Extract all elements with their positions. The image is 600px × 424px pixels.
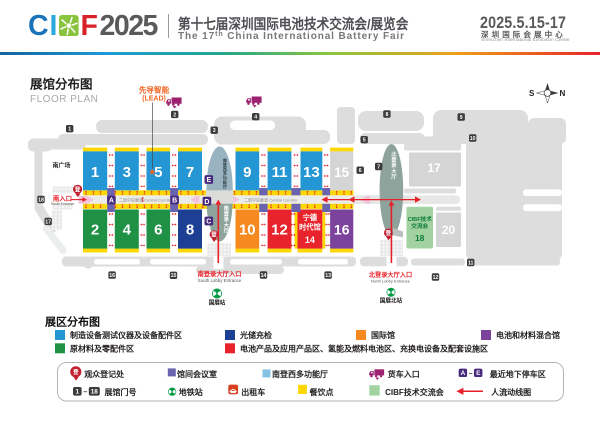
svg-text:1: 1	[68, 127, 71, 133]
svg-text:北登录大厅: 北登录大厅	[390, 150, 397, 180]
svg-text:3: 3	[213, 128, 216, 134]
svg-text:12: 12	[271, 222, 288, 239]
svg-text:17: 17	[427, 161, 441, 175]
svg-text:出租车: 出租车	[241, 387, 265, 397]
svg-text:登: 登	[74, 185, 81, 193]
svg-text:B: B	[172, 198, 177, 205]
svg-text:交流会: 交流会	[411, 222, 428, 230]
svg-text:登: 登	[72, 368, 79, 376]
svg-text:原材料及零配件区: 原材料及零配件区	[70, 344, 134, 354]
svg-text:D: D	[204, 199, 209, 206]
svg-text:18: 18	[38, 197, 44, 203]
svg-text:20: 20	[442, 223, 456, 237]
svg-text:15: 15	[171, 273, 177, 279]
svg-text:馆间会议室: 馆间会议室	[177, 369, 217, 379]
svg-text:3: 3	[123, 164, 131, 181]
svg-text:South Entrance: South Entrance	[51, 202, 74, 206]
svg-text:15: 15	[334, 165, 350, 180]
svg-text:18: 18	[415, 233, 425, 243]
svg-text:1: 1	[91, 164, 99, 181]
svg-text:16: 16	[109, 273, 115, 279]
svg-text:1: 1	[76, 389, 80, 396]
svg-text:制造设备测试仪器及设备配件区: 制造设备测试仪器及设备配件区	[70, 330, 182, 340]
svg-text:4: 4	[254, 115, 257, 121]
svg-text:货车入口: 货车入口	[387, 369, 420, 379]
svg-text:国展站: 国展站	[209, 299, 226, 307]
svg-text:9: 9	[460, 115, 463, 121]
svg-text:南登录大厅: 南登录大厅	[223, 204, 230, 234]
svg-text:N: N	[560, 89, 566, 98]
svg-text:14: 14	[305, 235, 315, 245]
svg-text:光储充检: 光储充检	[239, 330, 272, 340]
svg-text:8: 8	[385, 112, 388, 118]
svg-text:展馆分布图: 展馆分布图	[30, 77, 93, 92]
svg-text:电池和材料混合馆: 电池和材料混合馆	[496, 330, 560, 340]
svg-text:South Lobby Entrance: South Lobby Entrance	[198, 278, 242, 283]
svg-text:展区分布图: 展区分布图	[44, 315, 100, 329]
svg-text:E: E	[476, 370, 481, 377]
svg-text:–: –	[83, 389, 87, 396]
svg-text:13: 13	[303, 164, 320, 181]
svg-text:(LEAD): (LEAD)	[142, 96, 166, 103]
svg-text:南登西多功能厅: 南登西多功能厅	[222, 157, 228, 190]
svg-text:国际馆: 国际馆	[371, 330, 395, 340]
svg-text:6: 6	[154, 222, 162, 239]
svg-text:6: 6	[359, 168, 362, 174]
svg-text:登: 登	[210, 231, 217, 239]
svg-text:人流动线图: 人流动线图	[491, 387, 531, 397]
svg-text:二层中央廊道 Central Corridor: 二层中央廊道 Central Corridor	[119, 196, 173, 202]
svg-text:12: 12	[433, 275, 439, 281]
svg-text:17: 17	[45, 219, 51, 225]
svg-text:S: S	[529, 89, 535, 98]
svg-text:二层中央廊道 Central Corridor: 二层中央廊道 Central Corridor	[244, 196, 298, 202]
svg-text:2: 2	[173, 112, 176, 118]
svg-text:10: 10	[470, 136, 476, 142]
svg-text:南登西多功能厅: 南登西多功能厅	[272, 369, 328, 379]
svg-text:时代馆: 时代馆	[299, 223, 321, 232]
svg-text:A: A	[461, 370, 466, 377]
svg-text:电池产品及应用产品区、氢能及燃料电池区、充换电设备及配套设施: 电池产品及应用产品区、氢能及燃料电池区、充换电设备及配套设施区	[240, 344, 488, 354]
svg-text:观众登记处: 观众登记处	[84, 369, 125, 379]
svg-text:展馆门号: 展馆门号	[104, 387, 137, 397]
svg-text:FLOOR PLAN: FLOOR PLAN	[30, 94, 98, 105]
svg-text:4: 4	[123, 222, 132, 239]
svg-text:8: 8	[186, 222, 194, 239]
svg-text:登: 登	[385, 229, 392, 237]
svg-text:7: 7	[377, 164, 380, 170]
svg-text:最近地下停车区: 最近地下停车区	[490, 369, 546, 379]
svg-text:2: 2	[91, 222, 99, 239]
svg-text:18: 18	[91, 389, 99, 396]
svg-text:CIBF技术交流会: CIBF技术交流会	[385, 387, 444, 397]
svg-text:11: 11	[272, 164, 288, 181]
svg-text:11: 11	[468, 260, 474, 266]
svg-text:North Lobby Entrance: North Lobby Entrance	[371, 278, 411, 283]
svg-text:14: 14	[261, 273, 267, 279]
svg-text:5: 5	[363, 138, 366, 144]
svg-text:宁德: 宁德	[303, 213, 318, 222]
svg-text:餐饮点: 餐饮点	[309, 387, 334, 397]
svg-text:5: 5	[154, 164, 162, 181]
svg-text:地铁站: 地铁站	[179, 387, 203, 397]
svg-text:–: –	[469, 370, 473, 377]
svg-text:先导智能: 先导智能	[139, 85, 170, 95]
svg-text:E: E	[206, 177, 211, 184]
svg-text:13: 13	[325, 273, 331, 279]
svg-text:9: 9	[243, 164, 251, 181]
svg-text:CIBF技术: CIBF技术	[408, 215, 433, 223]
svg-text:A: A	[109, 198, 114, 205]
svg-text:C: C	[206, 219, 211, 226]
svg-text:国展北站: 国展北站	[380, 297, 403, 305]
svg-text:16: 16	[334, 222, 350, 238]
svg-text:10: 10	[239, 222, 256, 239]
svg-text:7: 7	[186, 164, 194, 181]
svg-text:南广场: 南广场	[53, 162, 71, 170]
